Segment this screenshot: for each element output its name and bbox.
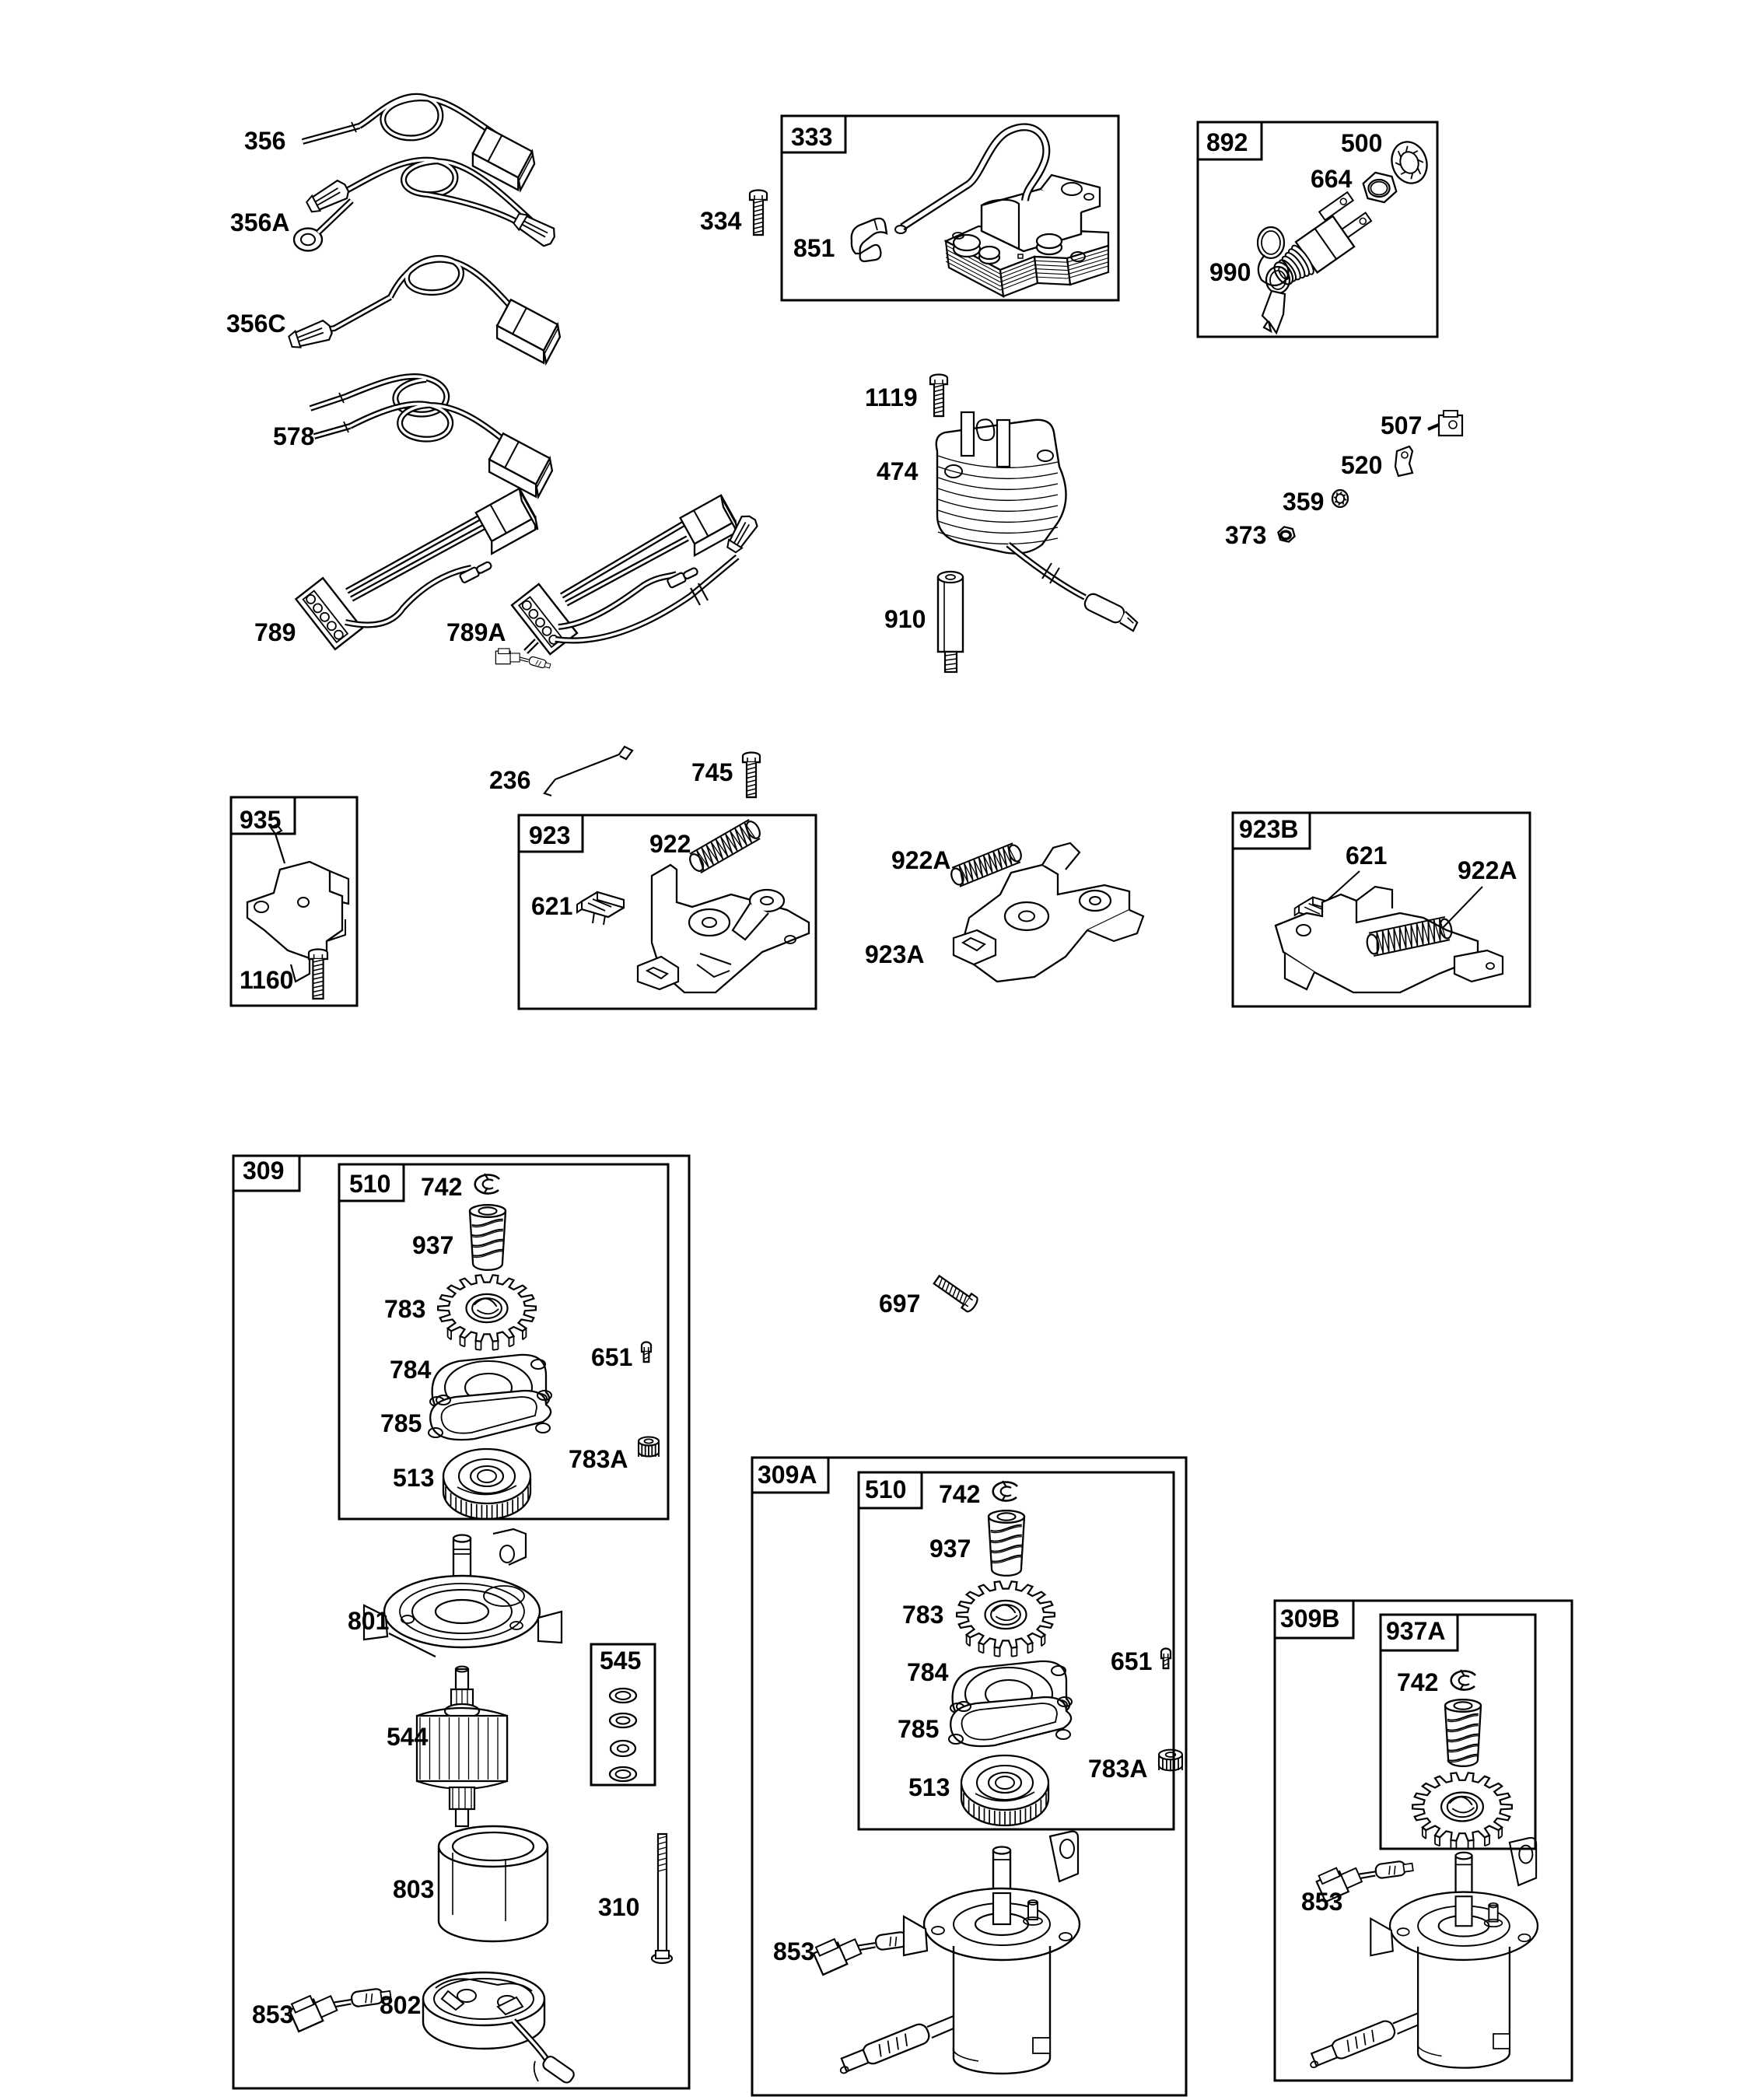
svg-text:784: 784: [390, 1356, 432, 1384]
svg-text:510: 510: [865, 1475, 906, 1503]
svg-text:783A: 783A: [569, 1445, 628, 1473]
svg-text:356A: 356A: [230, 208, 290, 236]
svg-text:935: 935: [240, 806, 281, 834]
svg-text:785: 785: [898, 1715, 939, 1743]
svg-text:578: 578: [273, 422, 314, 450]
svg-text:783: 783: [902, 1601, 943, 1629]
svg-text:507: 507: [1381, 411, 1422, 439]
svg-text:789A: 789A: [446, 618, 506, 646]
svg-text:851: 851: [793, 234, 835, 262]
svg-text:785: 785: [380, 1409, 422, 1437]
svg-text:359: 359: [1283, 488, 1324, 516]
svg-text:309: 309: [243, 1157, 284, 1185]
svg-text:500: 500: [1341, 129, 1382, 157]
svg-text:745: 745: [691, 758, 733, 786]
svg-text:544: 544: [387, 1723, 429, 1751]
svg-text:853: 853: [773, 1937, 814, 1965]
svg-text:990: 990: [1209, 258, 1251, 286]
svg-text:1160: 1160: [240, 966, 293, 994]
svg-text:1119: 1119: [865, 383, 918, 411]
svg-text:697: 697: [879, 1290, 920, 1318]
svg-text:937: 937: [929, 1535, 971, 1563]
svg-text:513: 513: [908, 1773, 950, 1801]
svg-text:621: 621: [531, 892, 572, 920]
svg-text:742: 742: [939, 1480, 980, 1508]
svg-text:923B: 923B: [1239, 815, 1299, 843]
svg-text:922: 922: [649, 830, 691, 858]
svg-text:789: 789: [254, 618, 296, 646]
svg-text:923: 923: [529, 821, 570, 849]
svg-text:801: 801: [348, 1607, 389, 1635]
svg-text:621: 621: [1346, 842, 1387, 870]
svg-text:853: 853: [252, 2000, 293, 2028]
svg-text:742: 742: [1397, 1668, 1438, 1696]
svg-text:510: 510: [349, 1170, 390, 1198]
svg-text:783A: 783A: [1088, 1755, 1148, 1783]
svg-text:236: 236: [489, 766, 530, 794]
svg-text:783: 783: [384, 1295, 425, 1323]
svg-text:334: 334: [700, 207, 742, 235]
svg-text:937: 937: [412, 1231, 453, 1259]
svg-text:802: 802: [380, 1991, 421, 2019]
svg-text:922A: 922A: [891, 846, 951, 874]
svg-text:520: 520: [1341, 451, 1382, 479]
svg-text:373: 373: [1225, 521, 1266, 549]
svg-text:356C: 356C: [226, 310, 286, 338]
svg-text:784: 784: [907, 1658, 949, 1686]
svg-text:545: 545: [600, 1647, 641, 1675]
svg-text:356: 356: [244, 127, 285, 155]
svg-text:651: 651: [591, 1343, 632, 1371]
svg-text:309B: 309B: [1280, 1605, 1340, 1633]
svg-text:664: 664: [1311, 165, 1353, 193]
svg-text:742: 742: [421, 1173, 462, 1201]
svg-text:333: 333: [791, 123, 832, 151]
svg-text:651: 651: [1111, 1647, 1152, 1675]
svg-text:309A: 309A: [758, 1461, 817, 1489]
svg-text:910: 910: [884, 605, 926, 633]
svg-text:310: 310: [598, 1893, 639, 1921]
svg-text:803: 803: [393, 1875, 434, 1903]
svg-text:923A: 923A: [865, 940, 925, 968]
svg-text:853: 853: [1301, 1888, 1342, 1916]
svg-text:922A: 922A: [1458, 856, 1517, 884]
svg-text:937A: 937A: [1386, 1617, 1446, 1645]
svg-text:474: 474: [877, 457, 919, 485]
svg-text:513: 513: [393, 1464, 434, 1492]
svg-text:892: 892: [1206, 128, 1248, 156]
